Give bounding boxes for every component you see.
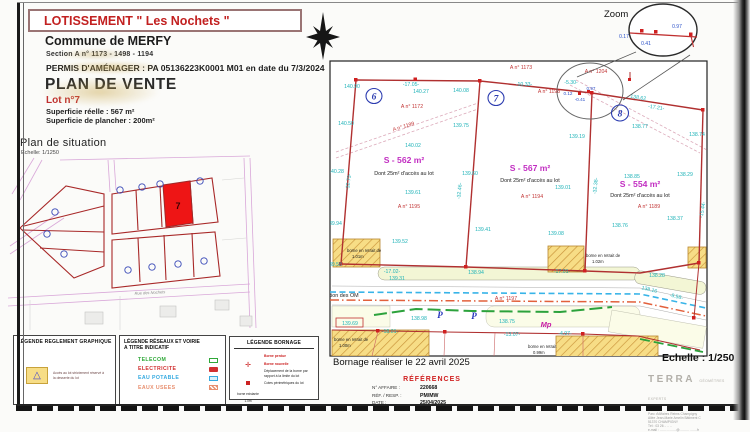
firm-address-line: e-mail : ……………@…………….fr: [648, 428, 736, 432]
ref-label: N° AFFAIRE :: [372, 385, 420, 391]
plan-label: 138.76: [612, 223, 628, 229]
minimap-lot-number: 7: [175, 201, 180, 211]
page-border-top: [17, 2, 739, 3]
plan-label: borne en retrait de: [586, 253, 621, 258]
plan-label: 138.75: [499, 319, 515, 325]
plan-label: S - 554 m²: [620, 179, 661, 189]
plan-label: S - 562 m²: [384, 155, 425, 165]
lot-circle-6: 6: [372, 93, 377, 103]
zoom-measure-2: 0.41: [641, 41, 651, 47]
plan-label: 140.08: [453, 88, 469, 94]
plan-label: Dont 25m² d'accès au lot: [610, 193, 670, 199]
plan-label: -5.30-: [564, 80, 578, 86]
plan-label: -4.97-: [558, 331, 572, 337]
ref-label: RÉF. / RESP. :: [372, 393, 420, 399]
plan-label: -0.41: [575, 97, 586, 102]
legend-electricity-label: ELECTRICITE: [138, 366, 176, 372]
plan-label: 139.75: [453, 123, 469, 129]
plan-label: 0.99m: [533, 350, 545, 355]
bornage-note: Bornage réaliser le 22 avril 2025: [333, 357, 470, 368]
plan-label: -17.02-: [384, 269, 401, 275]
plan-label: Présentation des OM: [308, 293, 359, 299]
plan-label: Dont 25m² d'accès au lot: [374, 171, 434, 177]
legend-telecom-label: TELECOM: [138, 357, 166, 363]
legend-graphic-item: Accès au lot strictement réservé à la de…: [53, 371, 105, 379]
legend-bornage-left-1: borne existante: [236, 393, 260, 397]
plan-label: -10.33-: [516, 82, 533, 88]
plan-label: borne en retrait de: [347, 248, 382, 253]
surface-line: Superficie réelle : 567 m²: [46, 107, 134, 116]
ref-value: 220668: [420, 385, 437, 391]
legend-bornage-title: LÉGENDE BORNAGE: [234, 337, 314, 349]
telecom-symbol-icon: [209, 358, 218, 363]
plan-label: 138.28: [649, 273, 665, 279]
legend-bornage-item: Déplacement de la borne par rapport à la…: [264, 369, 315, 378]
legend-graphic-title: LÉGENDE REGLEMENT GRAPHIQUE: [14, 336, 115, 345]
plan-label: 139.58: [326, 262, 342, 268]
plan-label: 140.28: [328, 169, 344, 175]
zoom-inset-title: Zoom: [604, 9, 628, 20]
plan-label: -17.05-: [403, 82, 420, 88]
plan-label: 138.29: [677, 172, 693, 178]
access-zone-icon: △: [26, 367, 48, 384]
legend-networks-subtitle: A TITRE INDICATIF: [124, 345, 169, 351]
plan-label: 0.12: [564, 91, 573, 96]
plan-label: 139.31: [389, 276, 405, 282]
plan-label: 1.02m: [592, 259, 604, 264]
borne-lost-icon: ✛: [245, 362, 251, 369]
plan-label: 0.97: [587, 86, 596, 91]
situation-title: Plan de situation: [20, 137, 106, 149]
plan-document-page: { "header": { "title": "LOTISSEMENT \" L…: [0, 0, 750, 420]
plan-label: borne en retrait de: [334, 337, 369, 342]
floor-surface-line: Superficie de plancher : 200m²: [46, 116, 155, 125]
plan-label: S - 567 m²: [510, 163, 551, 173]
page-border-left: [17, 2, 20, 409]
plan-label: -13.07-: [504, 332, 521, 338]
plan-title: PLAN DE VENTE: [45, 76, 177, 94]
commune-line: Commune de MERFY: [45, 34, 171, 48]
lot-circle-8: 8: [618, 110, 623, 120]
firm-logo: TERRA: [648, 374, 695, 385]
plan-label: 139.01: [555, 185, 571, 191]
plan-label: A n° 1173: [510, 65, 532, 71]
firm-block: TERRA GÉOMÈTRES EXPERTS REIMS Parc d'Aff…: [648, 369, 736, 432]
compass-rose-icon: [306, 12, 340, 60]
plan-label: 139.52: [392, 239, 408, 245]
plan-label: 139.69: [342, 321, 358, 327]
zoom-measure-1: 0.17: [619, 34, 629, 40]
plan-label: P: [437, 310, 443, 320]
plan-label: 140.90: [344, 84, 360, 90]
plan-label: A n° 1197: [495, 296, 517, 302]
plan-label: 138.37: [667, 216, 683, 222]
zoom-measure-3: 0.97: [672, 24, 682, 30]
lot-number-line: Lot n°7: [46, 95, 80, 106]
plan-label: A n° 1194: [521, 194, 543, 200]
page-edge-shadow: [733, 0, 750, 420]
plan-label: P: [471, 311, 477, 321]
plan-label: 1.01m: [352, 254, 364, 259]
situation-scale: Echelle: 1/1250: [21, 150, 59, 156]
plan-label: 139.08: [548, 231, 564, 237]
minimap-buildings: [85, 300, 252, 326]
legend-bornage-item: Borne perdue: [264, 354, 315, 359]
title-box: LOTISSEMENT " Les Nochets ": [28, 9, 302, 32]
plan-label: A n° 1189: [638, 204, 660, 210]
plan-label: 138.77: [632, 124, 648, 130]
legend-bornage-item: Cotes périmétriques du lot: [264, 381, 315, 386]
plan-label: 138.94: [468, 270, 484, 276]
plan-label: 139.41: [475, 227, 491, 233]
plan-label: -17.01-: [554, 269, 571, 275]
plan-label: 140.27: [413, 89, 429, 95]
legend-sewage-label: EAUX USEES: [138, 385, 175, 391]
plan-label: Mp: [541, 320, 552, 329]
plan-label: A n° 1195: [398, 204, 420, 210]
plan-label: 139.60: [462, 171, 478, 177]
plan-label: 1.00m: [339, 343, 351, 348]
main-scale: Echelle : 1/250: [662, 352, 734, 364]
plan-label: 139.94: [326, 221, 342, 227]
minimap-parcel-lines: [30, 178, 246, 330]
plan-label: -18.01-: [382, 329, 399, 335]
references-title: RÉFÉRENCES: [372, 376, 492, 383]
ref-value: PM/MW: [420, 393, 438, 399]
sewage-symbol-icon: [209, 385, 218, 390]
section-line: Section A n° 1173 - 1498 - 1194: [46, 51, 153, 58]
plan-label: 138.98: [411, 316, 427, 322]
legend-water-label: EAU POTABLE: [138, 375, 179, 381]
legend-graphic-box: LÉGENDE REGLEMENT GRAPHIQUE △ Accès au l…: [13, 335, 116, 405]
plan-label: 139.19: [569, 134, 585, 140]
document-title: LOTISSEMENT " Les Nochets ": [44, 14, 230, 28]
legend-bornage-item: Borne nouvelle: [264, 362, 315, 367]
page-border-bottom: [16, 406, 739, 411]
plan-label: Dont 25m² d'accès au lot: [500, 178, 560, 184]
plan-label: A n° 1198: [538, 89, 560, 95]
minimap-street-label: Rue des Nochets: [134, 289, 165, 296]
legend-bornage-box: LÉGENDE BORNAGE ✛ borne existante 1.0m -…: [229, 336, 319, 400]
plan-label: A n° 1172: [401, 104, 423, 110]
plan-label: 138.74: [689, 132, 705, 138]
water-symbol-icon: [209, 376, 218, 381]
electricity-symbol-icon: [209, 367, 218, 372]
plan-label: borne en retrait: [528, 344, 557, 349]
situation-map: 7 Rue des Nochets: [8, 156, 256, 330]
legend-networks-box: LÉGENDE RÉSEAUX ET VOIRIE A TITRE INDICA…: [119, 335, 226, 405]
road-verge-south-west: [332, 306, 390, 327]
plan-label: 140.50: [338, 121, 354, 127]
plan-label: 139.61: [405, 190, 421, 196]
page-border-left-inner: [23, 2, 24, 409]
references-block: RÉFÉRENCES N° AFFAIRE :220668 RÉF. / RES…: [372, 376, 492, 406]
plan-label: 140.02: [405, 143, 421, 149]
borne-new-icon: [246, 381, 250, 385]
permit-line: PERMIS D'AMÉNAGER : PA 05136223K0001 M01…: [46, 63, 325, 73]
